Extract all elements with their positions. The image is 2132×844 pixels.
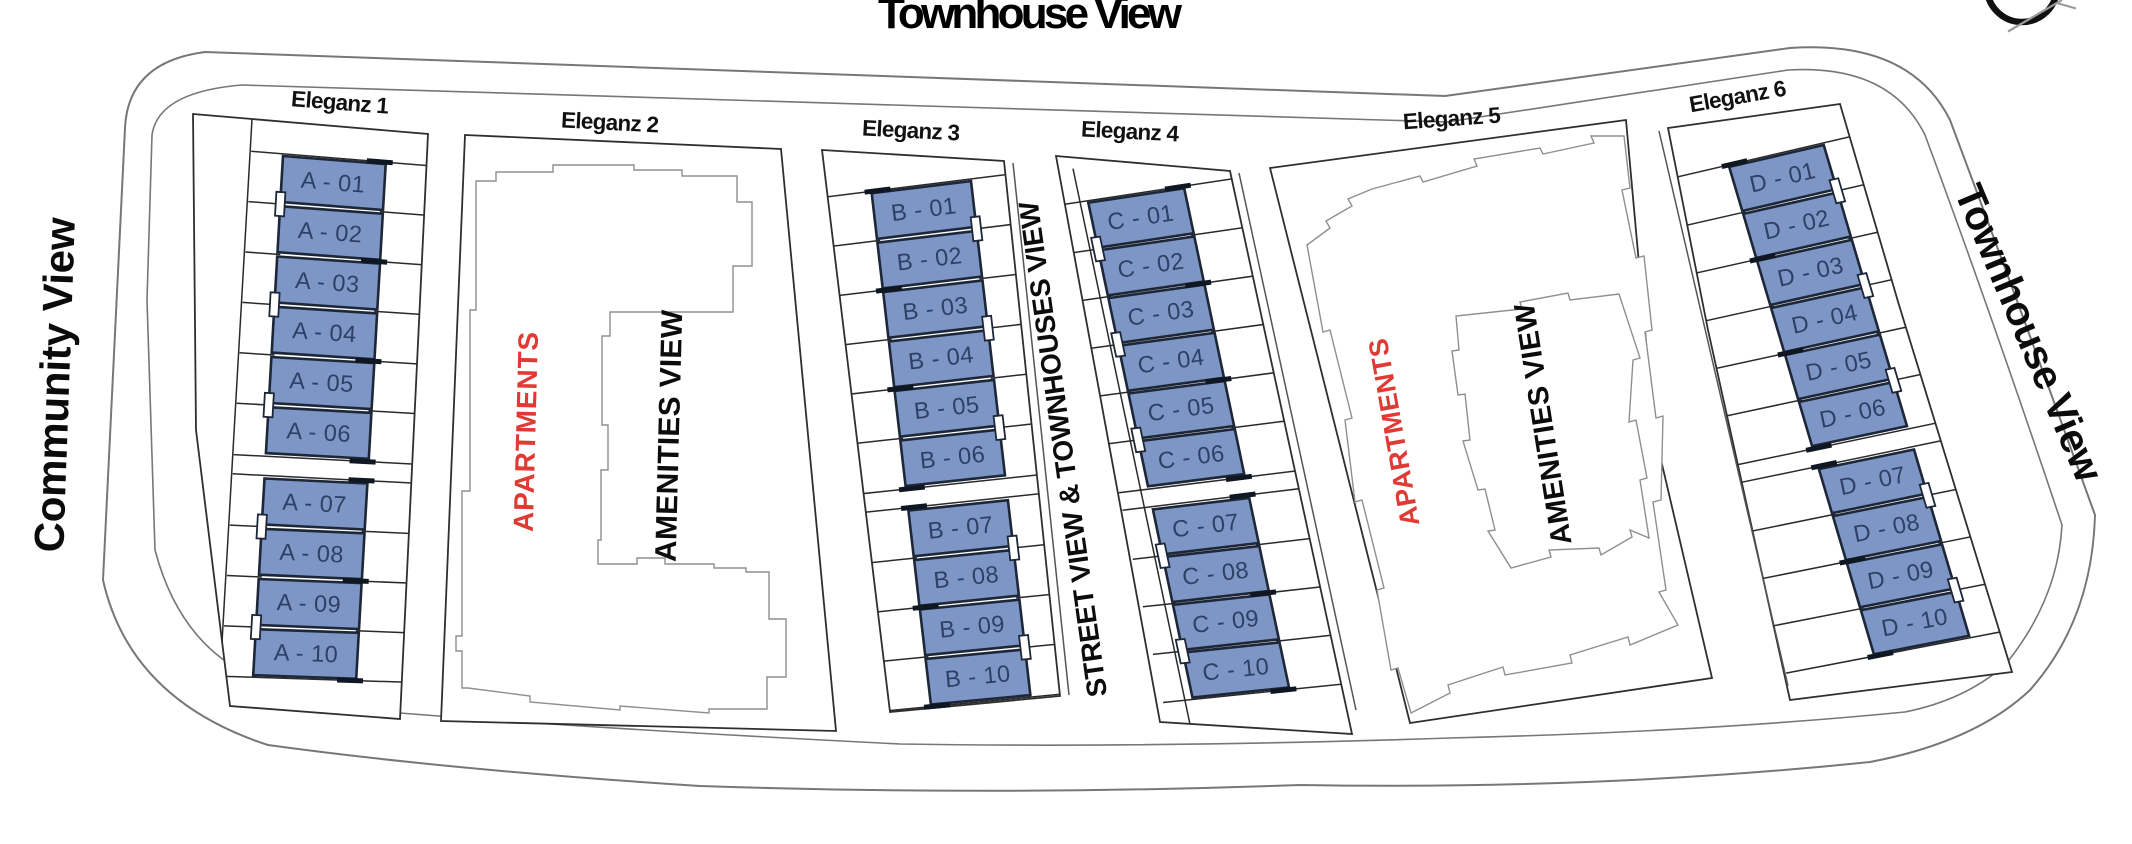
svg-text:A - 05: A - 05 [289, 367, 355, 397]
svg-text:A - 09: A - 09 [276, 589, 341, 618]
svg-text:A - 10: A - 10 [273, 639, 338, 667]
svg-text:Eleganz 3: Eleganz 3 [861, 115, 960, 145]
svg-text:A - 08: A - 08 [279, 539, 344, 568]
svg-text:Townhouse View: Townhouse View [878, 0, 1183, 38]
svg-text:APARTMENTS: APARTMENTS [508, 332, 544, 533]
svg-text:Eleganz 4: Eleganz 4 [1080, 116, 1180, 146]
svg-text:A - 02: A - 02 [297, 217, 363, 248]
svg-text:A - 06: A - 06 [286, 417, 352, 447]
svg-text:A - 01: A - 01 [300, 167, 366, 198]
svg-text:AMENITIES VIEW: AMENITIES VIEW [650, 309, 690, 562]
svg-text:Eleganz 2: Eleganz 2 [560, 107, 659, 137]
svg-text:A - 07: A - 07 [282, 489, 348, 518]
svg-text:A - 03: A - 03 [294, 267, 360, 297]
svg-text:A - 04: A - 04 [292, 317, 358, 347]
